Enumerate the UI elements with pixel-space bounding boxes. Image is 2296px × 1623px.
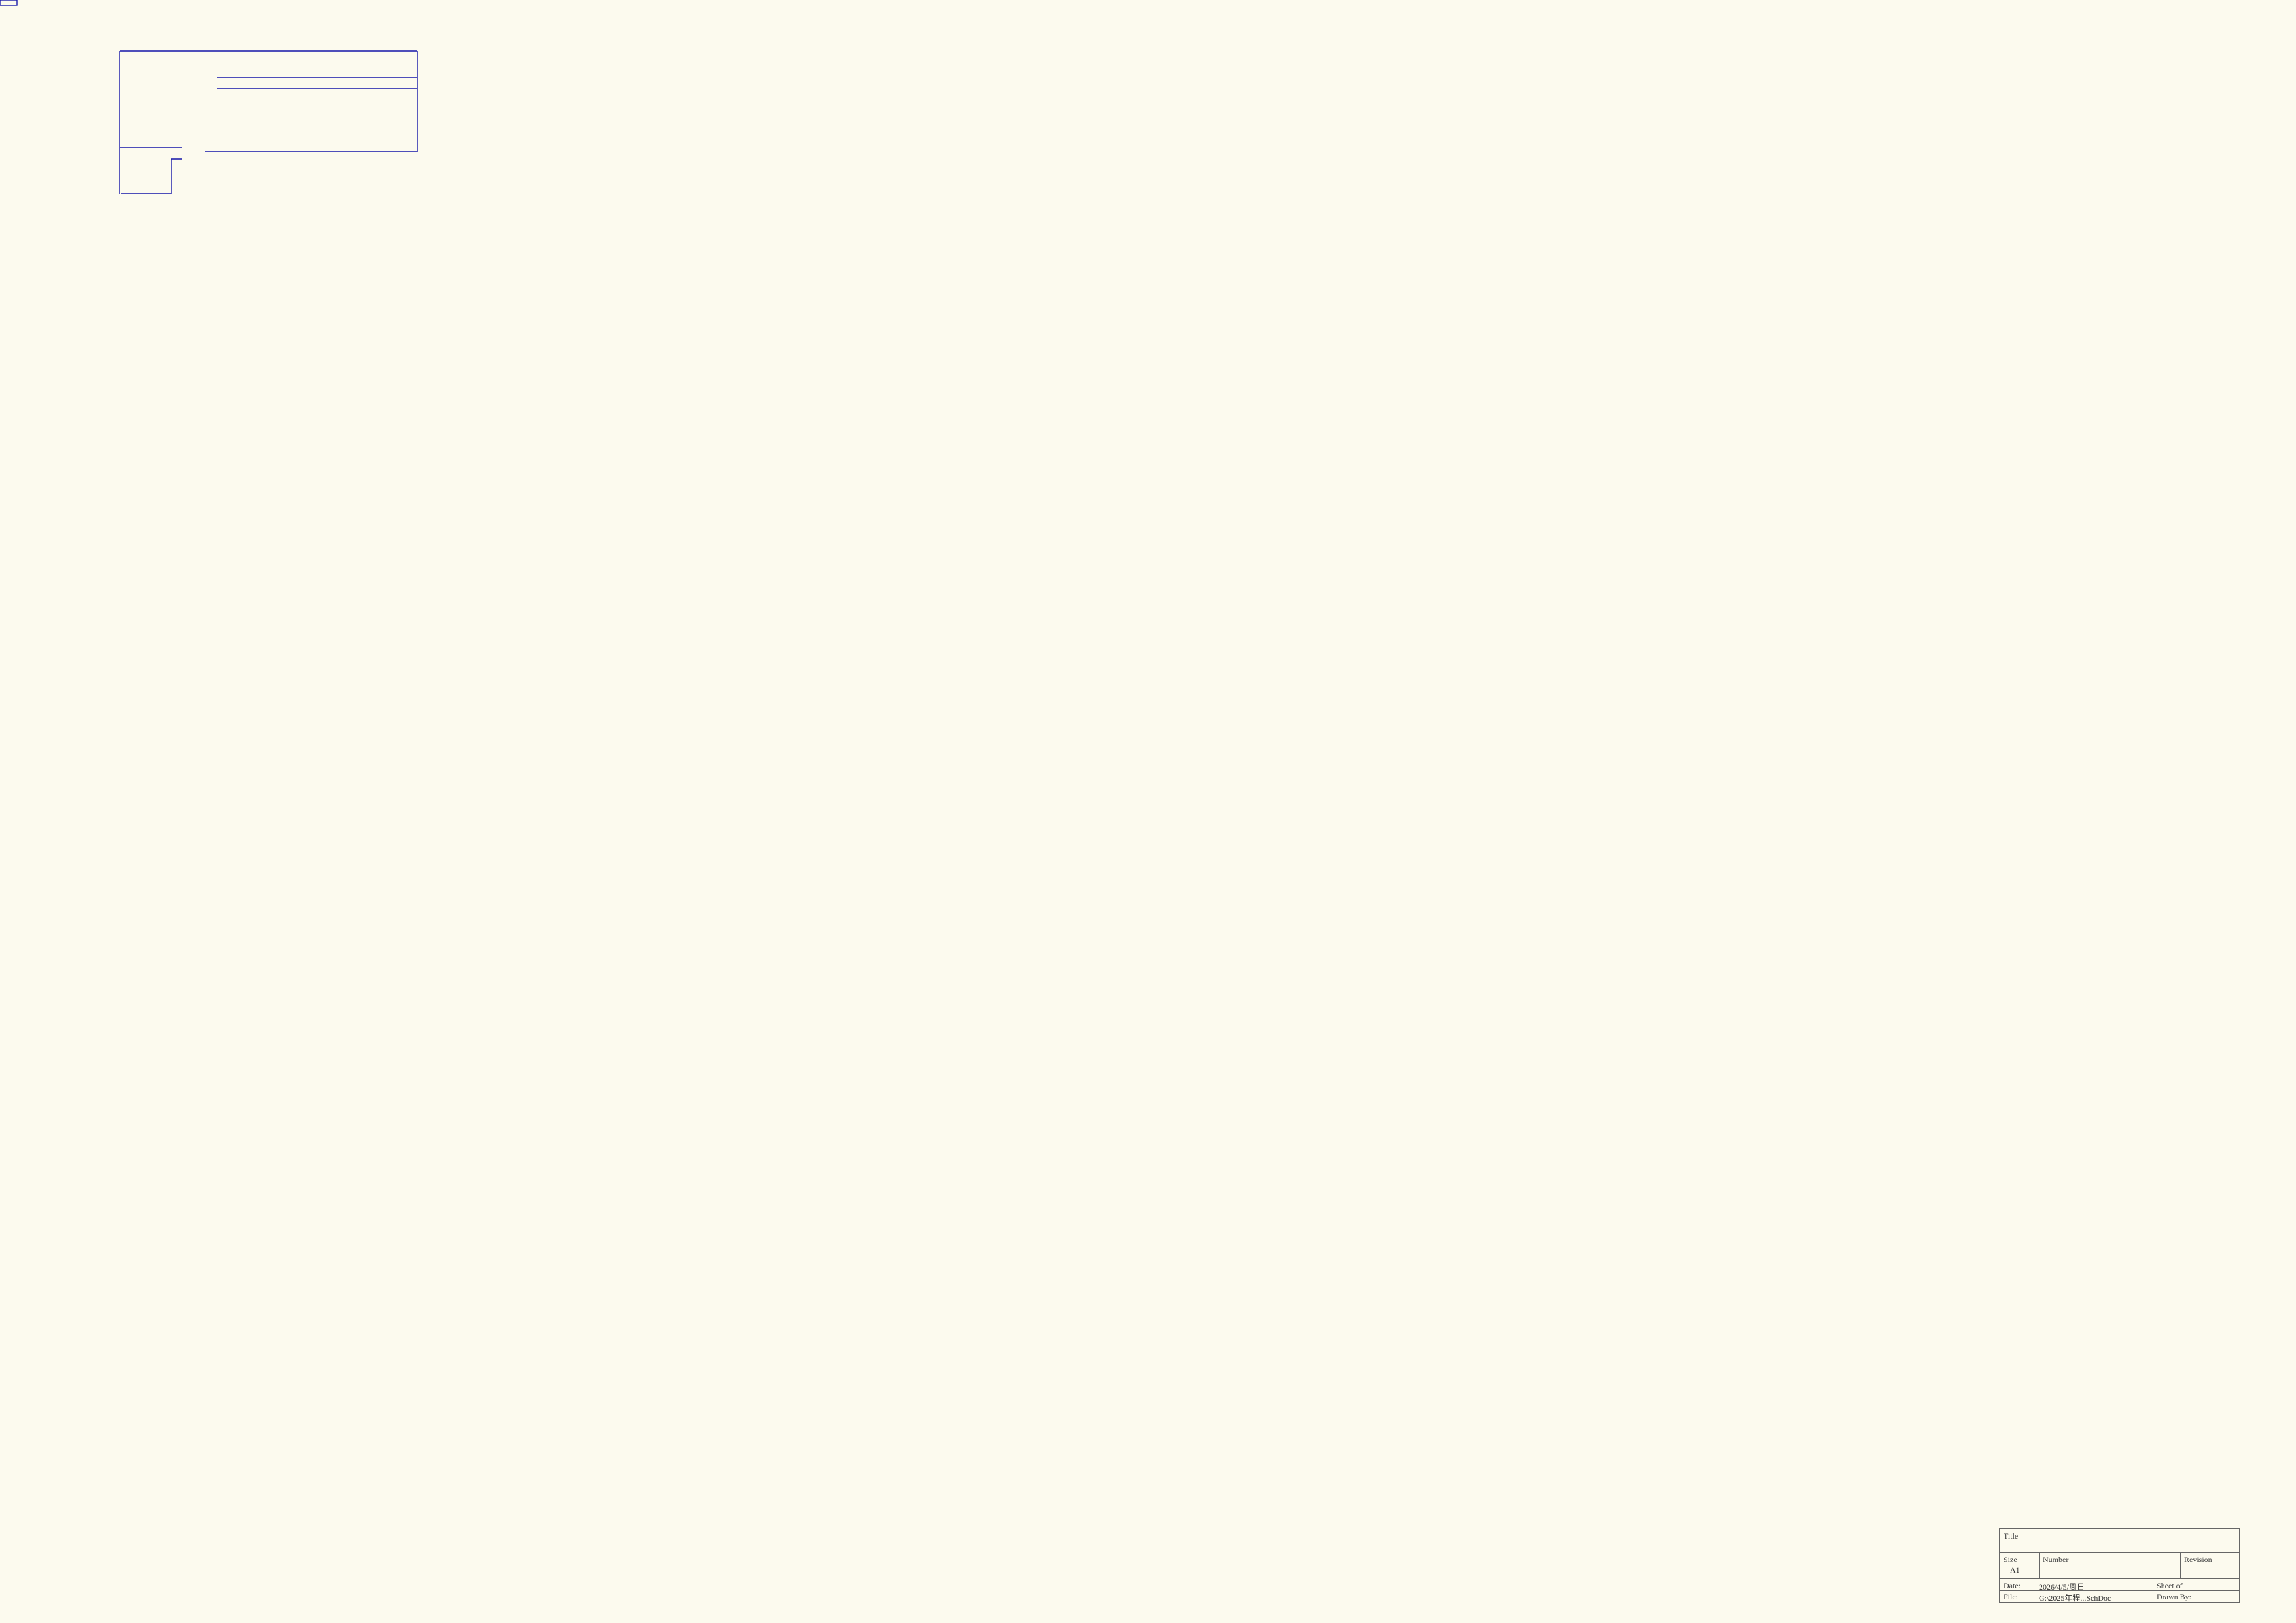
resistor bbox=[0, 0, 17, 5]
tb-divider bbox=[2000, 1552, 2239, 1553]
revision-label: Revision bbox=[2184, 1555, 2212, 1565]
drawnby-label: Drawn By: bbox=[2157, 1592, 2191, 1602]
size-label: Size bbox=[2004, 1555, 2017, 1565]
tb-divider bbox=[2000, 1578, 2239, 1579]
title-block: Title Size A1 Number Revision Date: 2026… bbox=[1999, 1528, 2240, 1603]
file-value: G:\2025年程...SchDoc bbox=[2039, 1592, 2111, 1603]
size-value: A1 bbox=[2010, 1565, 2020, 1575]
schematic-symbol-layer bbox=[0, 0, 2296, 1623]
tb-divider bbox=[2039, 1552, 2040, 1578]
number-label: Number bbox=[2043, 1555, 2068, 1565]
schematic-sheet: Title Size A1 Number Revision Date: 2026… bbox=[0, 0, 2296, 1623]
sheet-label: Sheet of bbox=[2157, 1581, 2183, 1591]
tb-divider bbox=[2000, 1590, 2239, 1591]
tb-divider bbox=[2180, 1552, 2181, 1578]
title-label: Title bbox=[2004, 1531, 2018, 1541]
file-label: File: bbox=[2004, 1592, 2018, 1602]
wire bbox=[121, 159, 182, 194]
resistor bbox=[0, 0, 17, 5]
date-label: Date: bbox=[2004, 1581, 2021, 1591]
